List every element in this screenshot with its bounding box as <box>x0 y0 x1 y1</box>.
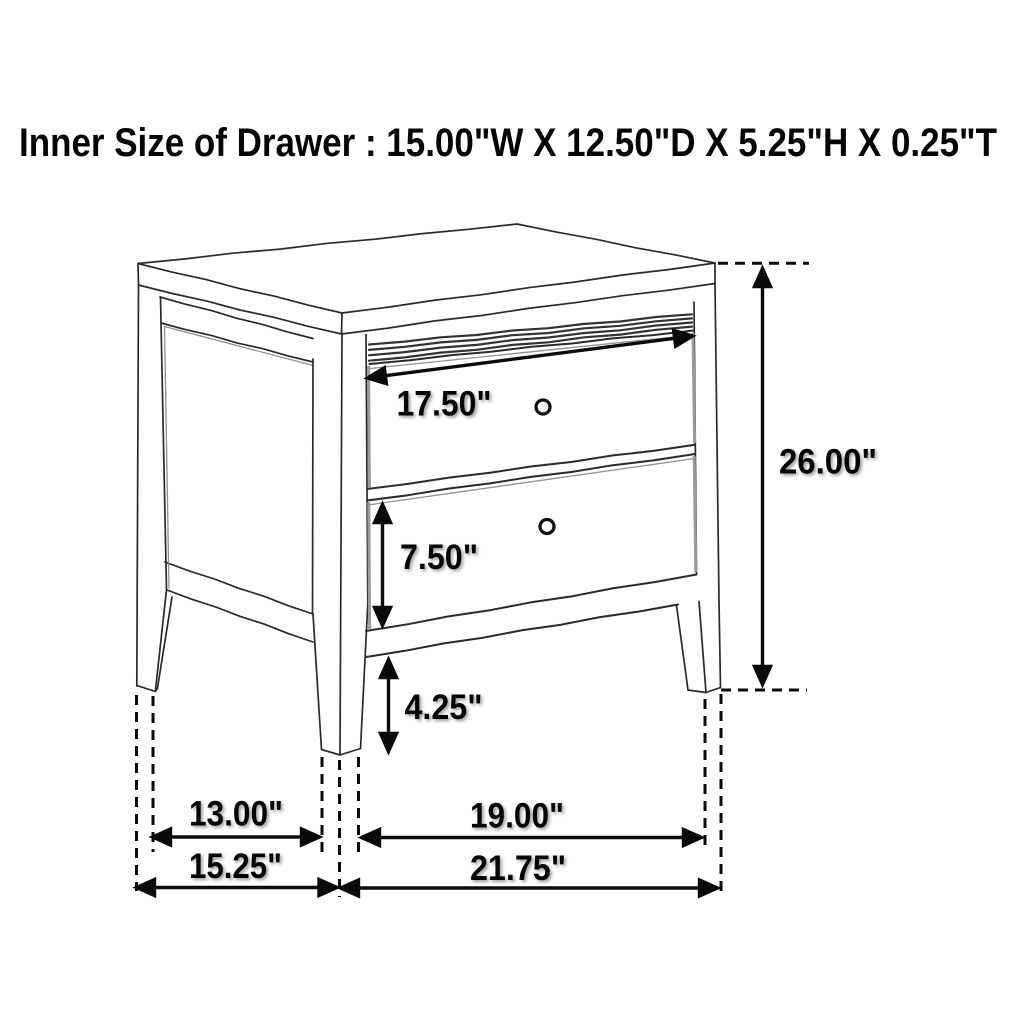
svg-text:4.25": 4.25" <box>405 688 483 727</box>
svg-text:15.25": 15.25" <box>189 847 282 886</box>
svg-text:Inner Size of Drawer : 15.00"W: Inner Size of Drawer : 15.00"W X 12.50"D… <box>19 121 997 165</box>
svg-text:19.00": 19.00" <box>470 797 564 836</box>
svg-text:21.75": 21.75" <box>470 849 566 888</box>
svg-text:13.00": 13.00" <box>189 795 283 834</box>
svg-text:7.50": 7.50" <box>400 538 478 577</box>
svg-text:17.50": 17.50" <box>397 385 492 424</box>
svg-text:26.00": 26.00" <box>779 443 877 482</box>
